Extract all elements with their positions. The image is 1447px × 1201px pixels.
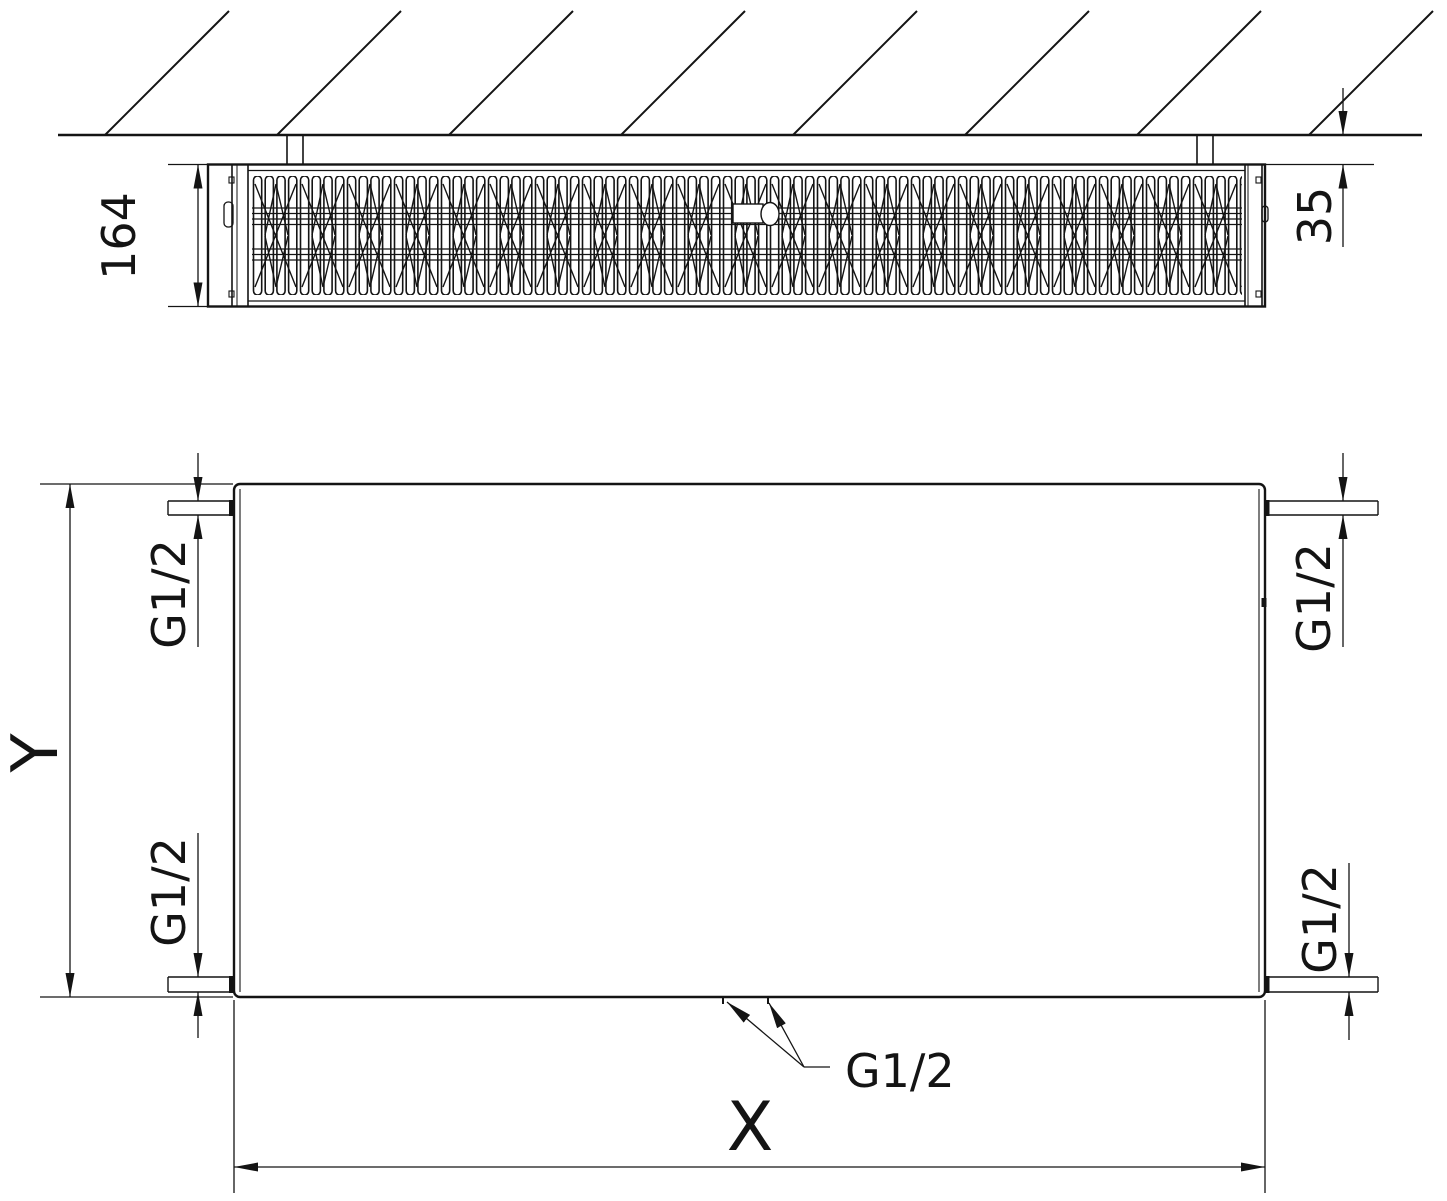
arrowhead-right bbox=[1241, 1163, 1265, 1172]
thread-dimension-bottom-left: G1/2 bbox=[142, 833, 203, 1038]
thread-dimension-top-left: G1/2 bbox=[142, 453, 203, 649]
height-dimension-label: Y bbox=[0, 733, 73, 774]
arrowhead-down bbox=[1339, 477, 1348, 501]
arrowhead-up bbox=[66, 484, 75, 508]
arrowhead-up bbox=[194, 515, 203, 539]
wall-hatching bbox=[105, 11, 1433, 135]
pipe-fitting bbox=[229, 500, 235, 516]
front-view: Y X G1/2 G1/2 G1/2 bbox=[0, 453, 1378, 1193]
pipe-fitting bbox=[1264, 976, 1270, 993]
cap-screw bbox=[1256, 177, 1261, 183]
mounting-bracket-right bbox=[1197, 135, 1213, 165]
width-dimension-label: X bbox=[727, 1088, 774, 1167]
bottom-connection-leader: G1/2 bbox=[723, 997, 955, 1098]
arrowhead-down bbox=[1339, 111, 1348, 135]
center-joint bbox=[733, 203, 779, 226]
arrowhead-down bbox=[194, 477, 203, 501]
arrowhead-up bbox=[194, 992, 203, 1016]
drawing-canvas: 164 35 bbox=[0, 0, 1447, 1201]
end-cap-left bbox=[224, 165, 248, 307]
dimension-width: X bbox=[234, 1000, 1265, 1193]
thread-label-bottom-left: G1/2 bbox=[142, 837, 196, 947]
thread-label-top-left: G1/2 bbox=[142, 539, 196, 649]
wall-offset-dimension-label: 35 bbox=[1288, 187, 1342, 246]
arrowhead-up bbox=[1339, 515, 1348, 539]
leader-arrow-line bbox=[769, 1003, 804, 1067]
convector-fins bbox=[252, 176, 1242, 295]
arrowhead-up bbox=[1345, 992, 1354, 1016]
mounting-bracket-left bbox=[287, 135, 303, 165]
connection-stub-top-left bbox=[168, 500, 235, 516]
arrowhead-up bbox=[194, 165, 203, 189]
extension-lines bbox=[168, 165, 208, 307]
radiator-technical-drawing: 164 35 bbox=[0, 0, 1447, 1201]
thread-label-bottom-right: G1/2 bbox=[1293, 864, 1347, 974]
radiator-cross-section bbox=[208, 165, 1268, 307]
thread-label-bottom-center: G1/2 bbox=[845, 1044, 955, 1098]
pipe-fitting bbox=[1264, 500, 1270, 516]
mounting-brackets bbox=[287, 135, 1213, 165]
leader-arrow-line bbox=[727, 1002, 804, 1067]
dimension-wall-offset: 35 bbox=[1265, 88, 1374, 247]
connection-stub-top-right bbox=[1264, 500, 1378, 516]
arrowhead-up bbox=[1339, 165, 1348, 189]
arrowhead-left bbox=[234, 1163, 258, 1172]
top-view: 164 35 bbox=[58, 11, 1433, 307]
connection-stub-bottom-right bbox=[1264, 976, 1378, 993]
depth-dimension-label: 164 bbox=[92, 192, 146, 280]
dimension-depth: 164 bbox=[92, 165, 208, 307]
arrowhead-down bbox=[66, 973, 75, 997]
hatch-lines bbox=[105, 11, 1433, 135]
cap-screw bbox=[1256, 291, 1261, 297]
connection-stub-bottom-left bbox=[168, 976, 235, 993]
arrowhead-down bbox=[194, 283, 203, 307]
panel-edge-inner-lines bbox=[240, 489, 1259, 992]
pipe-fitting bbox=[229, 976, 235, 993]
radiator-panel bbox=[234, 484, 1265, 997]
air-vent-mark bbox=[1262, 598, 1267, 607]
arrowhead-down bbox=[194, 953, 203, 977]
thread-label-top-right: G1/2 bbox=[1287, 543, 1341, 653]
thread-dimension-bottom-right: G1/2 bbox=[1293, 863, 1354, 1040]
thread-dimension-top-right: G1/2 bbox=[1287, 453, 1348, 653]
